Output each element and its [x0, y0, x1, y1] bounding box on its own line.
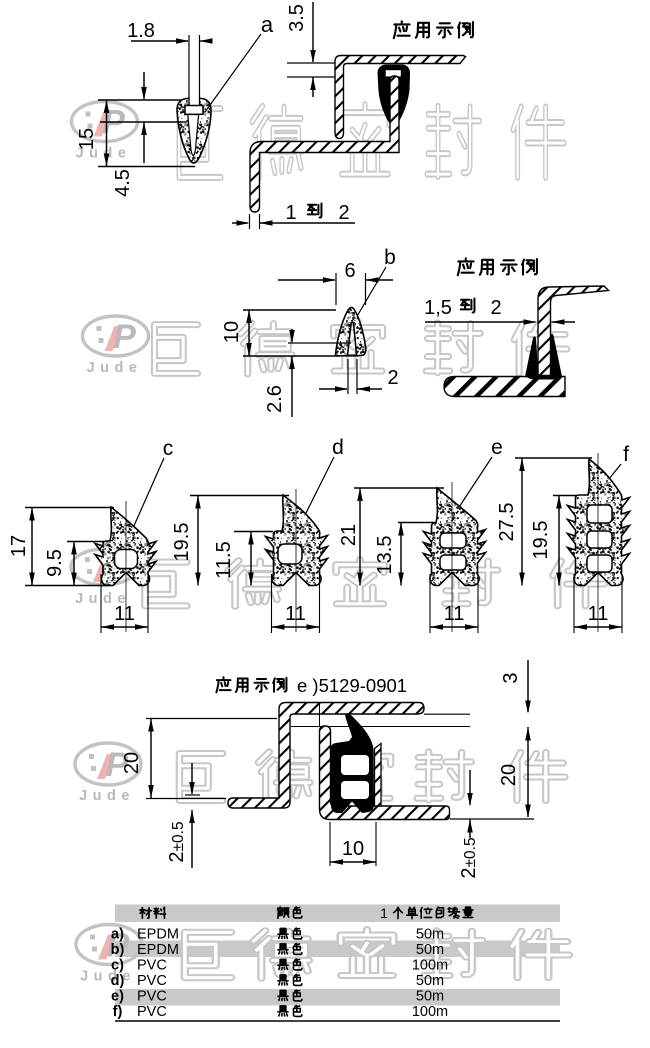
svg-text:e )5129-0901: e )5129-0901 — [297, 675, 407, 696]
svg-text:2: 2 — [387, 367, 398, 389]
svg-text:PVC: PVC — [137, 989, 167, 1005]
svg-text:4.5: 4.5 — [112, 169, 134, 197]
svg-text:2.6: 2.6 — [264, 385, 286, 413]
svg-text:b: b — [384, 246, 396, 269]
svg-text:11: 11 — [444, 603, 465, 625]
svg-text:EPDM: EPDM — [137, 927, 179, 943]
svg-text:17: 17 — [8, 535, 30, 557]
svg-text:d): d) — [111, 973, 125, 989]
svg-text:20: 20 — [121, 752, 143, 774]
svg-text:9.5: 9.5 — [44, 549, 66, 577]
svg-text:19.5: 19.5 — [171, 523, 193, 562]
svg-text:50m: 50m — [416, 973, 444, 989]
svg-text:Jude: Jude — [87, 360, 143, 376]
svg-text:a: a — [261, 12, 274, 37]
svg-text:10: 10 — [342, 838, 364, 860]
svg-text:27.5: 27.5 — [496, 503, 518, 542]
svg-text:19.5: 19.5 — [530, 521, 552, 560]
svg-text:c): c) — [111, 958, 124, 974]
svg-text:2: 2 — [490, 297, 501, 319]
svg-text:2±0.5: 2±0.5 — [166, 821, 188, 862]
svg-text:11: 11 — [114, 603, 135, 625]
svg-text:3.5: 3.5 — [286, 4, 308, 32]
svg-text:11: 11 — [285, 603, 306, 625]
svg-text:f): f) — [113, 1004, 123, 1020]
svg-text:f: f — [623, 443, 629, 466]
svg-text:11.5: 11.5 — [213, 541, 235, 578]
svg-text:P: P — [113, 318, 136, 356]
svg-text:100m: 100m — [412, 958, 448, 974]
svg-text:21: 21 — [338, 524, 360, 546]
svg-text:Jude: Jude — [79, 788, 135, 804]
svg-text:15: 15 — [76, 128, 98, 150]
svg-text:1,5: 1,5 — [424, 297, 452, 319]
svg-text:d: d — [332, 436, 344, 459]
svg-text:PVC: PVC — [137, 973, 167, 989]
svg-text:PVC: PVC — [137, 1004, 167, 1020]
svg-text:1: 1 — [285, 202, 296, 224]
svg-text:e: e — [491, 436, 503, 459]
svg-text:10: 10 — [221, 321, 243, 343]
svg-text:b): b) — [111, 942, 125, 958]
svg-text:50m: 50m — [416, 927, 444, 943]
svg-text:20: 20 — [498, 764, 520, 786]
svg-text:50m: 50m — [416, 942, 444, 958]
svg-text:1: 1 — [380, 905, 388, 921]
svg-text:2±0.5: 2±0.5 — [458, 837, 480, 878]
svg-text:100m: 100m — [412, 1004, 448, 1020]
svg-text:1.8: 1.8 — [127, 20, 155, 42]
svg-text:a): a) — [111, 927, 124, 943]
svg-text:Jude: Jude — [80, 969, 136, 985]
svg-text:3: 3 — [500, 672, 522, 683]
svg-text:11: 11 — [588, 603, 609, 625]
svg-text:PVC: PVC — [137, 958, 167, 974]
svg-text:13.5: 13.5 — [374, 536, 396, 575]
svg-text:e): e) — [111, 989, 124, 1005]
svg-text:c: c — [163, 437, 174, 460]
svg-text:EPDM: EPDM — [137, 942, 179, 958]
svg-text:2: 2 — [338, 202, 349, 224]
svg-text:50m: 50m — [416, 989, 444, 1005]
svg-text:6: 6 — [344, 260, 355, 282]
